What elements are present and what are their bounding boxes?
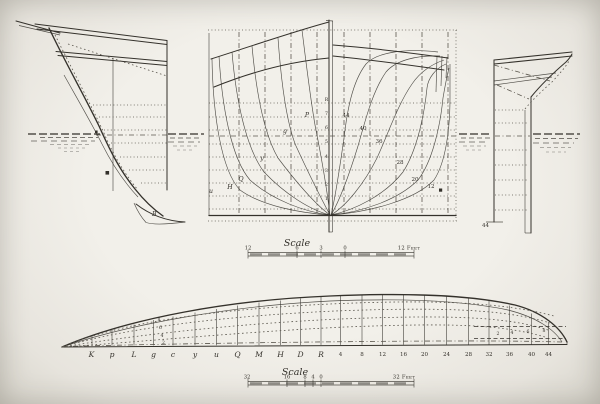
station-label: 24 bbox=[443, 352, 451, 358]
station-label: 12 bbox=[379, 352, 387, 358]
section-label: 12 bbox=[427, 184, 435, 190]
section-curve bbox=[232, 52, 330, 215]
section-curve bbox=[212, 59, 330, 215]
station-label: Q bbox=[234, 350, 240, 359]
section-curve bbox=[331, 60, 444, 215]
station-label: 36 bbox=[506, 352, 514, 358]
scale-tick-label: 3 bbox=[319, 246, 322, 252]
deck-line bbox=[494, 52, 572, 60]
section-label: g bbox=[283, 128, 287, 135]
section-label: P bbox=[304, 112, 310, 119]
half-breadth-view: 8 6 4 2 2 4 6 8 K p L g c y u Q M H D R … bbox=[62, 294, 567, 359]
scale-tick-label: 8 bbox=[303, 375, 306, 381]
station-label: H bbox=[276, 350, 284, 359]
section-curve bbox=[331, 64, 450, 215]
section-label: y bbox=[259, 155, 264, 162]
curve-marker bbox=[106, 171, 110, 175]
station-label: c bbox=[171, 350, 176, 359]
deck-outline bbox=[62, 295, 567, 347]
scale-tick-label: 12 bbox=[245, 246, 252, 252]
section-curve bbox=[219, 56, 330, 215]
transom-line bbox=[436, 56, 437, 92]
diagonal-dotted bbox=[62, 325, 545, 347]
counter-inner-dotted bbox=[525, 61, 569, 109]
scale-tick-label: 16 bbox=[284, 375, 291, 381]
station-label: 4 bbox=[339, 352, 343, 358]
diagonal-label: 2 bbox=[497, 331, 500, 337]
station-label: 16 bbox=[400, 352, 408, 358]
station-label: M bbox=[254, 350, 263, 359]
waterline-number: 3 bbox=[325, 168, 328, 174]
station-label: 44 bbox=[482, 223, 490, 229]
diagonal-label: 8 bbox=[543, 328, 546, 334]
section-label: 36 bbox=[375, 139, 383, 145]
waterline-number: 4 bbox=[325, 154, 328, 160]
section-label: 40 bbox=[359, 126, 367, 132]
waterline-number: 5 bbox=[325, 139, 328, 145]
deck-diagonal bbox=[497, 85, 529, 99]
station-label: 44 bbox=[545, 352, 553, 358]
station-label: 28 bbox=[465, 352, 473, 358]
station-label: u bbox=[214, 350, 219, 359]
forefoot-label: B bbox=[151, 211, 157, 218]
bow-profile-view: B bbox=[16, 21, 204, 224]
section-label: u bbox=[209, 188, 213, 195]
mast-cap bbox=[326, 21, 333, 22]
lines-plan-drawing: B bbox=[0, 0, 600, 404]
sheer-line-left bbox=[211, 22, 329, 59]
diagonal-label: 8 bbox=[158, 317, 161, 323]
station-label: y bbox=[192, 350, 198, 359]
scale-tick-label: 0 bbox=[319, 375, 322, 381]
rail-outline bbox=[62, 300, 562, 347]
scale-tick-label: 6 bbox=[295, 246, 298, 252]
diagonal-label: 4 bbox=[161, 333, 164, 339]
waterline-number: 6 bbox=[325, 125, 328, 131]
scale-tick-label: 0 bbox=[343, 246, 346, 252]
ship-lines-plan-photo: B bbox=[0, 0, 600, 404]
curve-marker bbox=[95, 131, 98, 134]
waterline-number: R bbox=[325, 97, 329, 103]
mid-scale: Scale 12 6 3 0 12 Feet bbox=[245, 238, 421, 259]
section-label: 20 bbox=[411, 177, 419, 183]
diagonal-label: 6 bbox=[527, 329, 530, 335]
station-label: 8 bbox=[360, 352, 364, 358]
station-label: 20 bbox=[421, 352, 429, 358]
stern-profile-view: 44 bbox=[482, 52, 580, 233]
scale-tick-label: 32 bbox=[244, 375, 251, 381]
section-label: H bbox=[226, 184, 233, 191]
section-label: 44 bbox=[342, 113, 350, 119]
deck-line bbox=[35, 24, 167, 41]
waterline-number: 2 bbox=[325, 182, 328, 188]
section-label: Q bbox=[238, 176, 243, 183]
body-plan-view: R 7 6 5 4 3 2 1 P g y Q H u 44 40 36 28 … bbox=[208, 20, 492, 232]
curve-marker bbox=[439, 189, 442, 192]
scale-end-label: 32 Feet bbox=[393, 375, 415, 381]
transom-line bbox=[441, 56, 442, 86]
center-baseline bbox=[62, 345, 567, 348]
station-label: R bbox=[317, 350, 324, 359]
deck-line bbox=[494, 56, 572, 64]
diagonal-label: 2 bbox=[162, 340, 165, 346]
station-label: p bbox=[110, 350, 115, 359]
station-label: K bbox=[88, 350, 96, 359]
diagonal-dotted bbox=[62, 302, 554, 347]
section-curve bbox=[331, 56, 440, 215]
station-label: 40 bbox=[528, 352, 536, 358]
waterline-number: 7 bbox=[325, 111, 328, 117]
scale-tick-label: 4 bbox=[311, 375, 315, 381]
bottom-scale: Scale 32 16 8 4 0 32 Feet bbox=[244, 367, 416, 388]
diagonal-label: 4 bbox=[511, 330, 514, 336]
scale-end-label: 12 Feet bbox=[398, 246, 420, 252]
waterline-number: 1 bbox=[325, 196, 328, 202]
section-label: 28 bbox=[396, 160, 404, 166]
rail-line-left bbox=[214, 58, 329, 87]
section-curve bbox=[331, 64, 446, 215]
station-label: 32 bbox=[485, 352, 493, 358]
diagonal-label: 6 bbox=[159, 325, 162, 331]
station-label: D bbox=[296, 350, 303, 359]
transom-line bbox=[446, 57, 447, 78]
section-curve bbox=[331, 68, 449, 215]
station-label: g bbox=[151, 350, 156, 359]
station-label: L bbox=[130, 350, 136, 359]
